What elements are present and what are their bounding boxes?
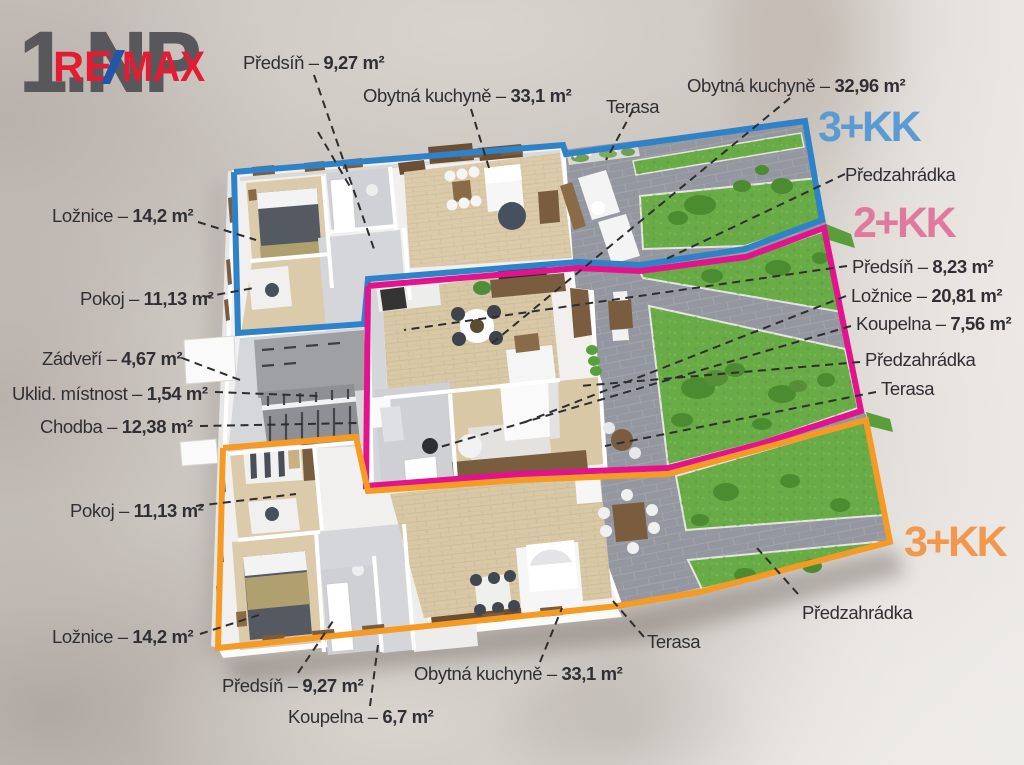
svg-text:Předzahrádka: Předzahrádka xyxy=(845,164,956,185)
svg-text:Pokoj – 11,13 m²: Pokoj – 11,13 m² xyxy=(80,288,214,309)
svg-text:3+KK: 3+KK xyxy=(818,103,922,151)
svg-text:Předsíň – 9,27 m²: Předsíň – 9,27 m² xyxy=(243,52,385,73)
svg-text:Chodba – 12,38 m²: Chodba – 12,38 m² xyxy=(40,416,193,437)
svg-text:Obytná kuchyně – 32,96 m²: Obytná kuchyně – 32,96 m² xyxy=(687,75,906,96)
svg-text:Zádveří – 4,67 m²: Zádveří – 4,67 m² xyxy=(42,348,182,369)
svg-text:Ložnice – 14,2 m²: Ložnice – 14,2 m² xyxy=(52,205,194,226)
svg-text:Ložnice – 14,2 m²: Ložnice – 14,2 m² xyxy=(52,626,194,647)
svg-text:Terasa: Terasa xyxy=(606,96,660,117)
svg-text:Předzahrádka: Předzahrádka xyxy=(865,349,976,370)
svg-text:Obytná kuchyně – 33,1 m²: Obytná kuchyně – 33,1 m² xyxy=(414,663,623,684)
svg-text:2+KK: 2+KK xyxy=(853,199,957,247)
svg-text:Terasa: Terasa xyxy=(647,631,701,652)
svg-text:Koupelna – 7,56 m²: Koupelna – 7,56 m² xyxy=(856,313,1012,334)
svg-text:Předsíň – 9,27 m²: Předsíň – 9,27 m² xyxy=(222,675,364,696)
svg-text:Pokoj – 11,13 m²: Pokoj – 11,13 m² xyxy=(70,500,204,521)
svg-text:MAX: MAX xyxy=(122,43,205,91)
svg-text:Uklid. místnost – 1,54 m²: Uklid. místnost – 1,54 m² xyxy=(12,383,208,404)
svg-text:Ložnice – 20,81 m²: Ložnice – 20,81 m² xyxy=(851,285,1002,306)
svg-text:Předzahrádka: Předzahrádka xyxy=(802,602,913,623)
svg-text:Obytná kuchyně – 33,1 m²: Obytná kuchyně – 33,1 m² xyxy=(363,85,572,106)
svg-text:Předsíň – 8,23 m²: Předsíň – 8,23 m² xyxy=(852,256,994,277)
svg-text:3+KK: 3+KK xyxy=(904,518,1008,566)
svg-text:Terasa: Terasa xyxy=(881,378,935,399)
svg-text:Koupelna – 6,7 m²: Koupelna – 6,7 m² xyxy=(288,706,434,727)
